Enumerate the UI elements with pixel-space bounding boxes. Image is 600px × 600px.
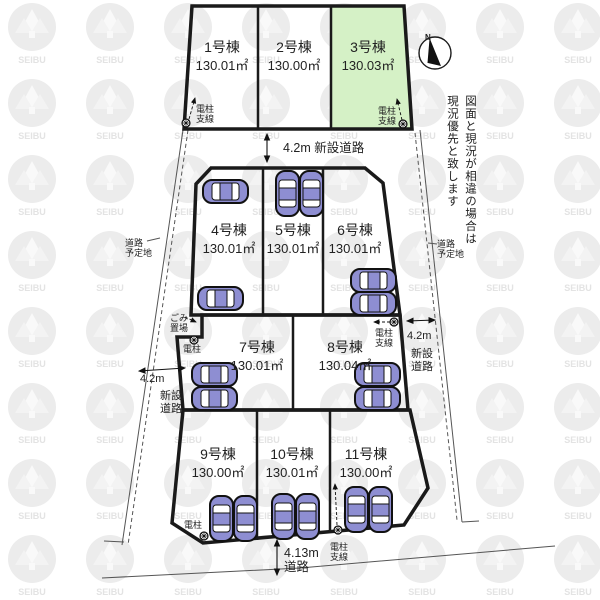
- pole-label: 電柱: [375, 327, 393, 338]
- left-road-width-label: 4.2m: [140, 373, 164, 385]
- site-plan-svg: SEIBU: [0, 0, 600, 600]
- brace-label: 支線: [196, 113, 214, 124]
- notice-line-1: 図面と現況が相違の場合は: [464, 95, 477, 245]
- car-icon: [351, 292, 396, 315]
- lot-3-name: 3号棟: [350, 39, 386, 55]
- lot-7-name: 7号棟: [239, 339, 275, 355]
- notice-line-2: 現況優先と致します: [446, 95, 459, 208]
- lot-2-area: 130.00㎡: [268, 58, 321, 73]
- utility-pole-icon: [399, 120, 407, 128]
- car-icon: [355, 387, 400, 410]
- car-icon: [192, 387, 237, 410]
- left-road-name-1: 新設: [160, 388, 182, 402]
- lot-3-area: 130.03㎡: [342, 58, 395, 73]
- lot-4-area: 130.01㎡: [203, 241, 256, 256]
- utility-pole-icon: [190, 336, 198, 344]
- lot-4-name: 4号棟: [211, 222, 247, 238]
- brace-label: 支線: [378, 115, 396, 126]
- car-icon: [203, 180, 248, 203]
- lot-11-area: 130.00㎡: [340, 465, 393, 480]
- utility-pole-icon: [334, 526, 342, 534]
- bottom-road-name: 道路: [284, 559, 310, 574]
- pole-label: 電柱: [330, 541, 348, 552]
- brace-label: 支線: [330, 551, 348, 562]
- right-road-width-label: 4.2m: [407, 330, 431, 342]
- car-icon: [369, 487, 392, 532]
- pole-label: 電柱: [183, 343, 201, 354]
- car-icon: [351, 269, 396, 292]
- lot-11-name: 11号棟: [345, 446, 388, 462]
- lot-10-name: 10号棟: [270, 446, 314, 462]
- left-road-name-2: 道路: [160, 401, 182, 415]
- lot-2-name: 2号棟: [276, 39, 312, 55]
- planned-road-left-1: 道路: [125, 237, 143, 248]
- lot-9-area: 130.00㎡: [192, 465, 245, 480]
- brace-label: 支線: [375, 337, 393, 348]
- utility-pole-icon: [390, 318, 398, 326]
- utility-pole-icon: [182, 119, 190, 127]
- car-icon: [276, 171, 299, 216]
- right-road-name-1: 新設: [411, 346, 433, 360]
- lot-5-name: 5号棟: [275, 222, 311, 238]
- lot-5-area: 130.01㎡: [267, 241, 320, 256]
- lot-1-area: 130.01㎡: [196, 58, 249, 73]
- planned-road-left-2: 予定地: [125, 247, 152, 258]
- planned-road-right-1: 道路: [437, 238, 455, 249]
- right-road-name-2: 道路: [411, 359, 433, 373]
- lot-6-name: 6号棟: [337, 222, 373, 238]
- planned-road-right-2: 予定地: [437, 248, 464, 259]
- car-icon: [296, 494, 319, 539]
- pole-label: 電柱: [196, 103, 214, 114]
- lot-8-name: 8号棟: [327, 339, 363, 355]
- garbage-label-1: ごみ: [170, 312, 188, 323]
- lot-6-area: 130.01㎡: [329, 241, 382, 256]
- car-icon: [345, 487, 368, 532]
- lot-7-area: 130.01㎡: [231, 358, 284, 373]
- car-icon: [300, 171, 323, 216]
- car-icon: [210, 496, 233, 541]
- garbage-label-2: 置場: [170, 322, 188, 333]
- car-icon: [234, 496, 257, 541]
- lot-9-name: 9号棟: [200, 446, 236, 462]
- compass-n-label: N: [425, 33, 431, 42]
- top-road-label: 4.2m 新設道路: [283, 140, 365, 155]
- lot-10-area: 130.01㎡: [266, 465, 319, 480]
- site-plan: SEIBU: [0, 0, 600, 600]
- utility-pole-icon: [200, 532, 208, 540]
- bottom-road-width-label: 4.13m: [284, 546, 319, 560]
- pole-label: 電柱: [378, 105, 396, 116]
- lot-8-area: 130.04㎡: [319, 358, 372, 373]
- lot-1-name: 1号棟: [204, 39, 240, 55]
- pole-label: 電柱: [184, 519, 202, 530]
- car-icon: [198, 287, 243, 310]
- car-icon: [272, 494, 295, 539]
